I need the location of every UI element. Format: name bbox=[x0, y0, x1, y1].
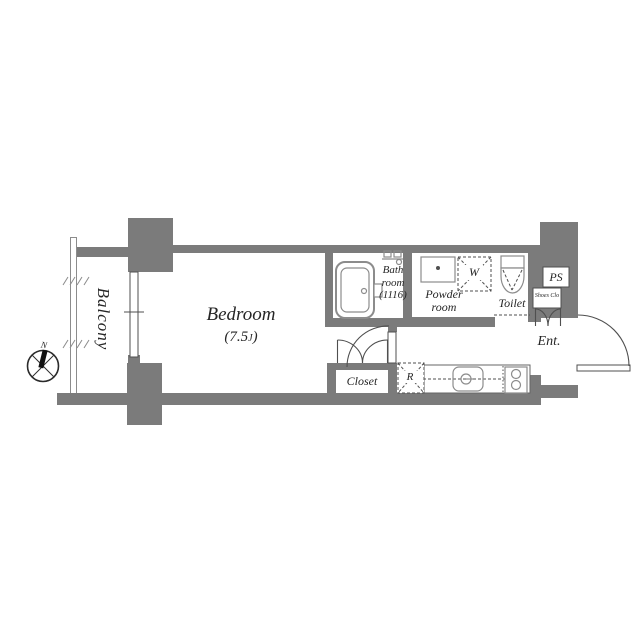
bedroom-label: Bedroom bbox=[181, 304, 301, 326]
entrance-label: Ent. bbox=[524, 334, 574, 350]
closet-label: Closet bbox=[333, 374, 391, 389]
balcony-label: Balcony bbox=[93, 279, 113, 359]
sink-icon bbox=[421, 257, 455, 282]
balcony-window bbox=[124, 272, 144, 357]
bedroom-size-label: (7.5J) bbox=[181, 329, 301, 346]
closet-doors bbox=[338, 340, 388, 363]
washer-label: W bbox=[465, 265, 483, 280]
faucet-icon bbox=[382, 251, 403, 265]
entrance-door bbox=[577, 315, 630, 371]
stove-icon bbox=[505, 367, 527, 393]
compass-icon bbox=[28, 350, 59, 382]
powder-room-label: Powder room bbox=[408, 288, 480, 314]
refrigerator-label: R bbox=[401, 371, 419, 383]
shoes-closet-label: Shoes Clo bbox=[532, 293, 562, 299]
balcony-railing bbox=[63, 237, 89, 393]
floor-plan: Balcony Bedroom (7.5J) Bath room (1116) … bbox=[0, 0, 640, 640]
pipe-space-label: PS bbox=[543, 270, 569, 285]
